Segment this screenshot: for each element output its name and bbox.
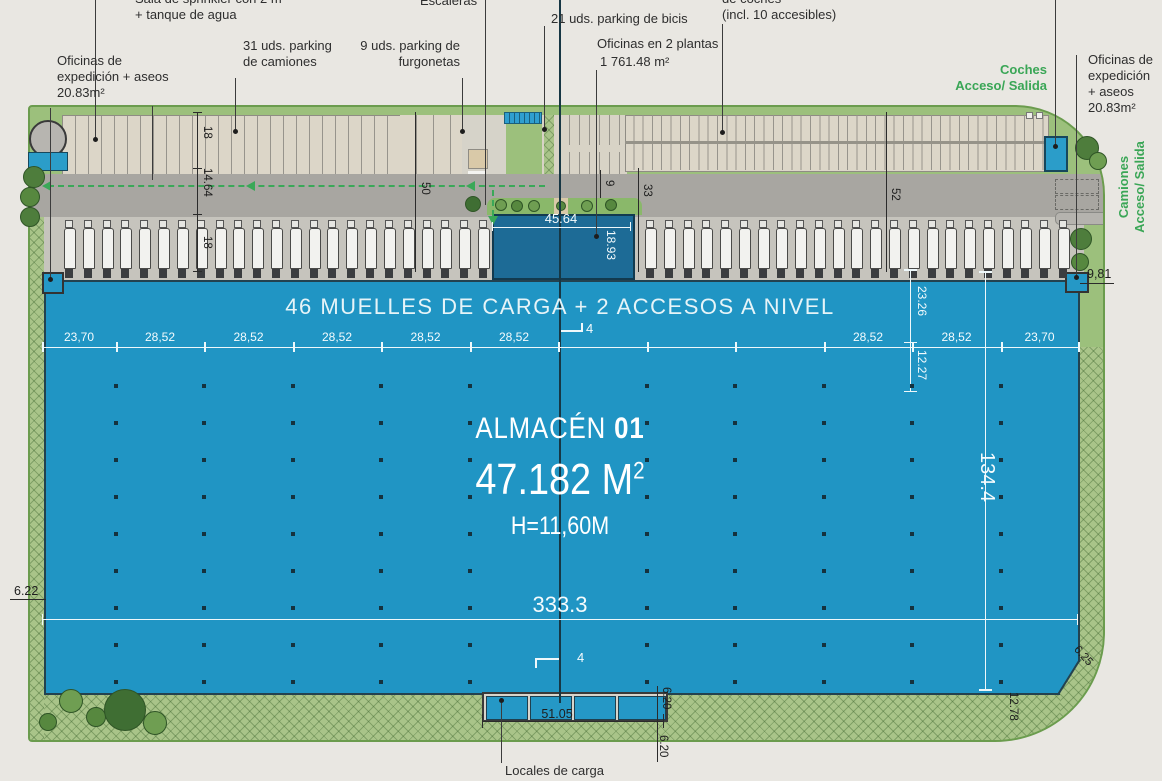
column-dot <box>468 606 472 610</box>
dim-52: 52 <box>889 188 901 201</box>
dock-marker <box>460 220 468 228</box>
dock-marker <box>721 220 729 228</box>
dock-door <box>759 269 767 278</box>
dock-door <box>702 269 710 278</box>
dock-door <box>1040 269 1048 278</box>
dock-door <box>366 269 374 278</box>
label-offices-floors-area: 1 761.48 m² <box>600 54 669 70</box>
column-dot <box>291 643 295 647</box>
dim-segment-label: 28,52 <box>927 330 987 344</box>
dim-line-33 <box>638 168 639 272</box>
dock-trailer <box>645 228 657 269</box>
dock-trailer <box>478 228 490 269</box>
leader-dot <box>1074 275 1079 280</box>
dock-marker <box>928 220 936 228</box>
dim-segment-label: 23,70 <box>49 330 109 344</box>
column-dot <box>468 680 472 684</box>
dock-marker <box>815 220 823 228</box>
column-dot <box>910 680 914 684</box>
dim-tick <box>470 342 472 352</box>
column-dot <box>645 680 649 684</box>
dock-door <box>253 269 261 278</box>
column-dot <box>733 643 737 647</box>
column-dot <box>379 421 383 425</box>
dock-trailer <box>290 228 302 269</box>
column-dot <box>999 680 1003 684</box>
column-dot <box>822 569 826 573</box>
column-dot <box>468 643 472 647</box>
column-dot <box>822 680 826 684</box>
dock-trailer <box>927 228 939 269</box>
leader-line <box>462 78 463 132</box>
dock-trailer <box>215 228 227 269</box>
dock-trailer <box>1002 228 1014 269</box>
dim-segment-label: 28,52 <box>484 330 544 344</box>
dim-tick <box>647 342 649 352</box>
dock-marker <box>84 220 92 228</box>
column-dot <box>291 421 295 425</box>
leader-dot <box>594 234 599 239</box>
dock-door <box>140 269 148 278</box>
dock-marker <box>366 220 374 228</box>
label-trucks-parking: 31 uds. parking de camiones <box>243 38 332 70</box>
dock-trailer <box>889 228 901 269</box>
dock-marker <box>796 220 804 228</box>
tree-icon <box>20 187 40 207</box>
dock-door <box>404 269 412 278</box>
dock-trailer <box>83 228 95 269</box>
dim-tick <box>663 714 664 728</box>
dock-door <box>216 269 224 278</box>
dock-marker <box>441 220 449 228</box>
column-dot <box>999 569 1003 573</box>
dock-door <box>740 269 748 278</box>
tree-icon <box>104 689 146 731</box>
dock-marker <box>310 220 318 228</box>
dock-trailer <box>459 228 471 269</box>
warehouse-unit: 01 <box>614 412 644 445</box>
dim-tick <box>193 112 202 113</box>
dim-tick <box>116 342 118 352</box>
column-dot <box>910 458 914 462</box>
column-dot <box>114 680 118 684</box>
dim-333-3: 333.3 <box>510 592 610 618</box>
column-dot <box>114 643 118 647</box>
column-dot <box>202 532 206 536</box>
column-dot <box>733 532 737 536</box>
dim-tick <box>824 342 826 352</box>
column-dot <box>114 458 118 462</box>
label-loading-bays: Locales de carga <box>505 763 604 779</box>
leader-dot <box>499 698 504 703</box>
column-dot <box>468 384 472 388</box>
loading-local-cell <box>486 696 528 720</box>
warehouse-height: H=11,60M <box>431 512 689 541</box>
site-plan-canvas: 4 4 46 MUELLES DE CARGA + 2 ACCESOS A NI… <box>0 0 1162 781</box>
leader-line <box>1055 0 1056 147</box>
dock-door <box>684 269 692 278</box>
dock-door <box>178 269 186 278</box>
dock-trailer <box>1058 228 1070 269</box>
dim-tick <box>735 342 737 352</box>
tree-icon <box>605 199 617 211</box>
dock-marker <box>684 220 692 228</box>
dock-door <box>721 269 729 278</box>
dim-tick <box>1001 342 1003 352</box>
loading-local-cell <box>618 696 666 720</box>
dim-9: 9 <box>603 180 615 186</box>
dock-marker <box>234 220 242 228</box>
column-dot <box>291 532 295 536</box>
column-dot <box>645 569 649 573</box>
label-cars-access: Coches Acceso/ Salida <box>927 62 1047 94</box>
dock-door <box>121 269 129 278</box>
leader-line <box>152 106 153 180</box>
leader-dot <box>1053 144 1058 149</box>
dim-tick <box>904 391 917 392</box>
docks-banner: 46 MUELLES DE CARGA + 2 ACCESOS A NIVEL <box>230 294 890 320</box>
column-dot <box>910 421 914 425</box>
tree-icon <box>1089 152 1107 170</box>
leader-line <box>501 703 502 763</box>
dock-trailer <box>440 228 452 269</box>
column-dot <box>822 495 826 499</box>
dock-trailer <box>422 228 434 269</box>
warehouse-edge-top <box>44 280 1080 282</box>
dim-tick <box>193 271 202 272</box>
dim-tick <box>904 342 917 343</box>
leader-line <box>544 26 545 130</box>
dock-trailer <box>139 228 151 269</box>
dock-trailer <box>102 228 114 269</box>
dim-14-64: 14.64 <box>201 168 213 197</box>
tree-icon <box>59 689 83 713</box>
dock-door <box>291 269 299 278</box>
dock-door <box>1021 269 1029 278</box>
tree-icon <box>86 707 106 727</box>
van-parking-area <box>400 115 462 177</box>
dock-door <box>310 269 318 278</box>
leader-line <box>485 0 486 205</box>
dock-trailer <box>233 228 245 269</box>
dock-marker <box>1040 220 1048 228</box>
dim-office-depth: 18.93 <box>604 230 618 260</box>
dock-door <box>65 269 73 278</box>
leader-dot <box>233 129 238 134</box>
dock-trailer <box>64 228 76 269</box>
dock-marker <box>404 220 412 228</box>
column-dot <box>202 495 206 499</box>
column-dot <box>379 606 383 610</box>
column-dot <box>202 569 206 573</box>
warehouse-area: 47.182 M2 <box>431 455 689 505</box>
dock-door <box>928 269 936 278</box>
dock-marker <box>890 220 898 228</box>
dim-tick <box>558 342 560 352</box>
column-dot <box>379 569 383 573</box>
dock-marker <box>423 220 431 228</box>
column-dot <box>202 680 206 684</box>
tree-icon <box>495 199 507 211</box>
column-dot <box>822 458 826 462</box>
dock-marker <box>1003 220 1011 228</box>
dock-marker <box>328 220 336 228</box>
dim-line-23-26 <box>910 270 911 392</box>
dock-marker <box>777 220 785 228</box>
dim-tick <box>630 222 631 231</box>
column-dot <box>910 569 914 573</box>
dim-tick <box>204 342 206 352</box>
column-dot <box>645 384 649 388</box>
expedition-office-right-upper-box <box>1044 136 1068 172</box>
column-dot <box>202 606 206 610</box>
traffic-flow-branch <box>492 190 494 216</box>
column-dot <box>202 458 206 462</box>
column-dot <box>822 643 826 647</box>
column-dot <box>910 643 914 647</box>
dock-trailer <box>252 228 264 269</box>
dock-door <box>385 269 393 278</box>
column-dot <box>910 384 914 388</box>
column-dot <box>379 643 383 647</box>
dim-23-26: 23.26 <box>915 286 929 316</box>
dock-trailer <box>1039 228 1051 269</box>
dim-6-20-a: 6.20 <box>660 687 672 709</box>
dock-marker <box>852 220 860 228</box>
dock-marker <box>909 220 917 228</box>
dim-12-78: 12.78 <box>1007 692 1019 721</box>
dim-segment-label: 28,52 <box>130 330 190 344</box>
utility-marker <box>1026 112 1033 119</box>
dim-tick <box>1077 614 1078 625</box>
dock-marker <box>759 220 767 228</box>
column-dot <box>202 421 206 425</box>
column-dot <box>291 458 295 462</box>
dock-trailer <box>309 228 321 269</box>
dim-line-52 <box>886 112 887 272</box>
dim-segment-label: 28,52 <box>219 330 279 344</box>
column-dot <box>291 384 295 388</box>
column-dot <box>733 495 737 499</box>
dim-tick <box>492 222 493 231</box>
dim-segment-label: 28,52 <box>396 330 456 344</box>
dock-trailer <box>327 228 339 269</box>
column-dot <box>733 384 737 388</box>
column-dot <box>999 532 1003 536</box>
section-marker-line <box>535 658 559 660</box>
leader-line <box>1076 55 1077 278</box>
column-dot <box>910 606 914 610</box>
dim-line-9 <box>600 170 601 198</box>
dim-tick <box>193 214 202 215</box>
dock-trailer <box>945 228 957 269</box>
dock-trailer <box>758 228 770 269</box>
dim-12-27: 12.27 <box>915 350 929 380</box>
column-dot <box>822 606 826 610</box>
dock-trailer <box>384 228 396 269</box>
dock-marker <box>702 220 710 228</box>
column-dot <box>999 606 1003 610</box>
label-sprinkler: Sala de sprinkler con 2 m + tanque de ag… <box>135 0 282 23</box>
column-dot <box>999 384 1003 388</box>
column-dot <box>291 569 295 573</box>
dock-trailer <box>908 228 920 269</box>
dock-door <box>84 269 92 278</box>
leader-line <box>596 70 597 237</box>
dim-33: 33 <box>641 184 653 197</box>
dock-marker <box>1059 220 1067 228</box>
section-marker-number: 4 <box>586 321 593 336</box>
dock-door <box>946 269 954 278</box>
warehouse-edge-left <box>44 280 46 695</box>
tree-icon <box>143 711 167 735</box>
tree-icon <box>1070 228 1092 250</box>
dock-marker <box>291 220 299 228</box>
leader-dot <box>93 137 98 142</box>
dim-underline-9-81 <box>1080 283 1114 284</box>
leader-line <box>722 24 723 133</box>
dock-door <box>646 269 654 278</box>
column-dot <box>291 680 295 684</box>
dim-segment-label: 28,52 <box>307 330 367 344</box>
column-dot <box>114 384 118 388</box>
column-dot <box>291 606 295 610</box>
dim-tick <box>979 689 992 691</box>
dock-marker <box>871 220 879 228</box>
traffic-arrow-icon <box>466 181 475 191</box>
dock-marker <box>984 220 992 228</box>
dock-trailer <box>701 228 713 269</box>
column-dot <box>114 421 118 425</box>
column-dot <box>468 569 472 573</box>
dim-6-20-b: 6.20 <box>657 735 669 757</box>
dim-line-50 <box>415 112 416 272</box>
dim-18-bottom: 18 <box>201 236 213 249</box>
dock-marker <box>385 220 393 228</box>
dock-marker <box>347 220 355 228</box>
label-trucks-access: Camiones Acceso/ Salida <box>1116 117 1156 257</box>
dock-trailer <box>120 228 132 269</box>
traffic-arrow-down-icon <box>488 216 498 225</box>
dock-trailer <box>983 228 995 269</box>
dim-segment-label: 23,70 <box>1010 330 1070 344</box>
dock-trailer <box>795 228 807 269</box>
column-dot <box>114 495 118 499</box>
dock-trailer <box>271 228 283 269</box>
dock-trailer <box>683 228 695 269</box>
column-dot <box>379 680 383 684</box>
warehouse-area-exp: 2 <box>633 457 644 484</box>
dim-line-left-stack <box>197 112 198 272</box>
tree-icon <box>20 207 40 227</box>
tree-icon <box>556 201 566 211</box>
traffic-arrow-icon <box>246 181 255 191</box>
car-parking-row-top <box>625 115 1047 141</box>
dock-marker <box>197 220 205 228</box>
dim-line-333-3 <box>42 619 1078 620</box>
column-dot <box>910 495 914 499</box>
expedition-office-left-box <box>42 272 64 294</box>
dock-door <box>815 269 823 278</box>
dock-marker <box>646 220 654 228</box>
dim-tick <box>1078 342 1080 352</box>
dim-18-top: 18 <box>201 126 213 139</box>
warehouse-edge-right <box>1078 280 1080 662</box>
dim-51-05: 51.05 <box>527 707 587 721</box>
section-marker-line <box>561 330 583 332</box>
leader-dot <box>542 127 547 132</box>
dock-marker <box>121 220 129 228</box>
dim-line-51-05 <box>482 721 664 722</box>
dock-trailer <box>346 228 358 269</box>
dim-tick <box>482 714 483 728</box>
column-dot <box>379 532 383 536</box>
dock-trailer <box>403 228 415 269</box>
dim-line-office-width <box>492 227 630 228</box>
section-marker-number: 4 <box>577 650 584 665</box>
column-dot <box>202 643 206 647</box>
dim-segment-label: 28,52 <box>838 330 898 344</box>
label-cars-parking: de coches (incl. 10 accesibles) <box>722 0 836 23</box>
column-dot <box>379 458 383 462</box>
road-marking-box <box>1055 195 1099 210</box>
dock-trailer <box>870 228 882 269</box>
tree-icon <box>511 200 523 212</box>
office-court-stalls-top <box>560 115 625 145</box>
warehouse-area-value: 47.182 M <box>475 455 633 504</box>
column-dot <box>999 643 1003 647</box>
column-dot <box>822 532 826 536</box>
dock-marker <box>665 220 673 228</box>
column-dot <box>910 532 914 536</box>
dock-marker <box>834 220 842 228</box>
dock-door <box>347 269 355 278</box>
dock-marker <box>1021 220 1029 228</box>
dim-6-22: 6.22 <box>14 584 38 598</box>
dock-door <box>423 269 431 278</box>
dim-tick <box>904 269 917 271</box>
dock-marker <box>159 220 167 228</box>
label-offices-floors: Oficinas en 2 plantas <box>597 36 718 52</box>
dock-door <box>460 269 468 278</box>
dim-9-81: 9,81 <box>1087 267 1111 281</box>
dock-trailer <box>720 228 732 269</box>
dock-trailer <box>739 228 751 269</box>
column-dot <box>999 421 1003 425</box>
column-dot <box>822 421 826 425</box>
leader-dot <box>720 130 725 135</box>
dock-trailer <box>1020 228 1032 269</box>
dock-trailer <box>177 228 189 269</box>
leader-dot <box>460 129 465 134</box>
dock-marker <box>272 220 280 228</box>
dock-marker <box>65 220 73 228</box>
column-dot <box>114 606 118 610</box>
column-dot <box>999 495 1003 499</box>
label-bikes-parking: 21 uds. parking de bicis <box>551 11 688 27</box>
dock-marker <box>103 220 111 228</box>
column-dot <box>822 384 826 388</box>
dock-trailer <box>664 228 676 269</box>
dock-trailer <box>833 228 845 269</box>
column-dot <box>291 495 295 499</box>
dock-door <box>441 269 449 278</box>
dock-marker <box>946 220 954 228</box>
dock-marker <box>253 220 261 228</box>
label-offices-left: Oficinas de expedición + aseos 20.83m² <box>57 53 169 101</box>
dock-marker <box>140 220 148 228</box>
dock-door <box>834 269 842 278</box>
